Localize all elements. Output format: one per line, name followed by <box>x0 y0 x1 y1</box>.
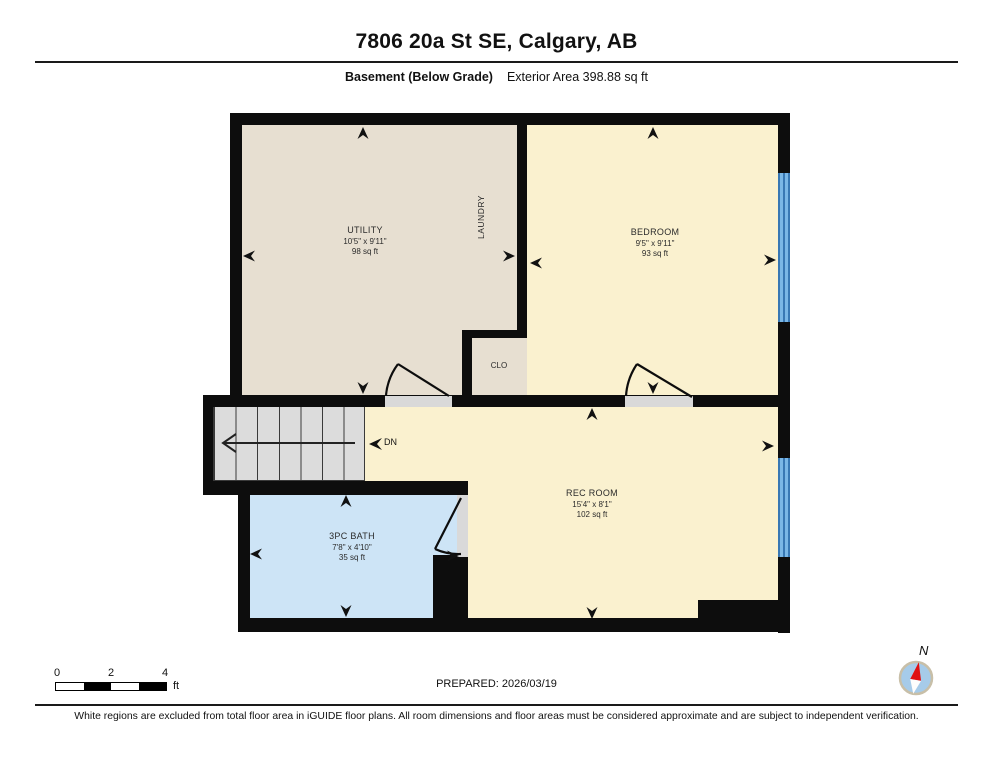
down-arrow-icon <box>369 438 382 450</box>
bedroom-arrow-up <box>648 127 659 139</box>
utility-arrow-left <box>243 251 255 262</box>
rec-room-arrow-up <box>587 408 598 420</box>
floorplan-drawing: UTILITY 10'5" x 9'11" 98 sq ft LAUNDRY B… <box>203 113 791 633</box>
laundry-label: LAUNDRY <box>476 172 486 262</box>
disclaimer-text: White regions are excluded from total fl… <box>0 711 993 722</box>
utility-room-label: UTILITY 10'5" x 9'11" 98 sq ft <box>295 225 435 257</box>
bath-arrow-left <box>250 549 262 560</box>
utility-arrow-up <box>358 127 369 139</box>
bath-arrow-right <box>447 551 459 562</box>
bedroom-label: BEDROOM 9'5" x 9'11" 93 sq ft <box>585 227 725 259</box>
bedroom-arrow-left <box>530 258 542 269</box>
utility-arrow-down <box>358 382 369 394</box>
closet-label: CLO <box>472 361 526 371</box>
bath-door <box>435 498 461 554</box>
stairs-direction-arrow <box>223 434 355 452</box>
compass-icon: N <box>892 642 942 700</box>
floorplan-page: 7806 20a St SE, Calgary, AB Basement (Be… <box>0 0 993 768</box>
bedroom-door <box>626 364 692 397</box>
bath-arrow-up <box>341 495 352 507</box>
bathroom-label: 3PC BATH 7'8" x 4'10" 35 sq ft <box>282 531 422 563</box>
rec-room-label: REC ROOM 15'4" x 8'1" 102 sq ft <box>522 488 662 520</box>
floor-subtitle: Basement (Below Grade)Exterior Area 398.… <box>0 70 993 84</box>
footer-divider <box>35 704 958 706</box>
stairs-down-label: DN <box>384 437 397 447</box>
compass-north-label: N <box>919 643 929 658</box>
header-divider <box>35 61 958 63</box>
bedroom-arrow-down <box>648 382 659 394</box>
bedroom-arrow-right <box>764 255 776 266</box>
bath-arrow-down <box>341 605 352 617</box>
utility-arrow-right <box>503 251 515 262</box>
rec-room-arrow-down <box>587 607 598 619</box>
page-title: 7806 20a St SE, Calgary, AB <box>0 30 993 54</box>
exterior-area-label: Exterior Area 398.88 sq ft <box>507 70 648 84</box>
floor-label: Basement (Below Grade) <box>345 70 493 84</box>
rec-room-arrow-right <box>762 441 774 452</box>
prepared-date: PREPARED: 2026/03/19 <box>0 678 993 690</box>
utility-door <box>386 364 449 396</box>
